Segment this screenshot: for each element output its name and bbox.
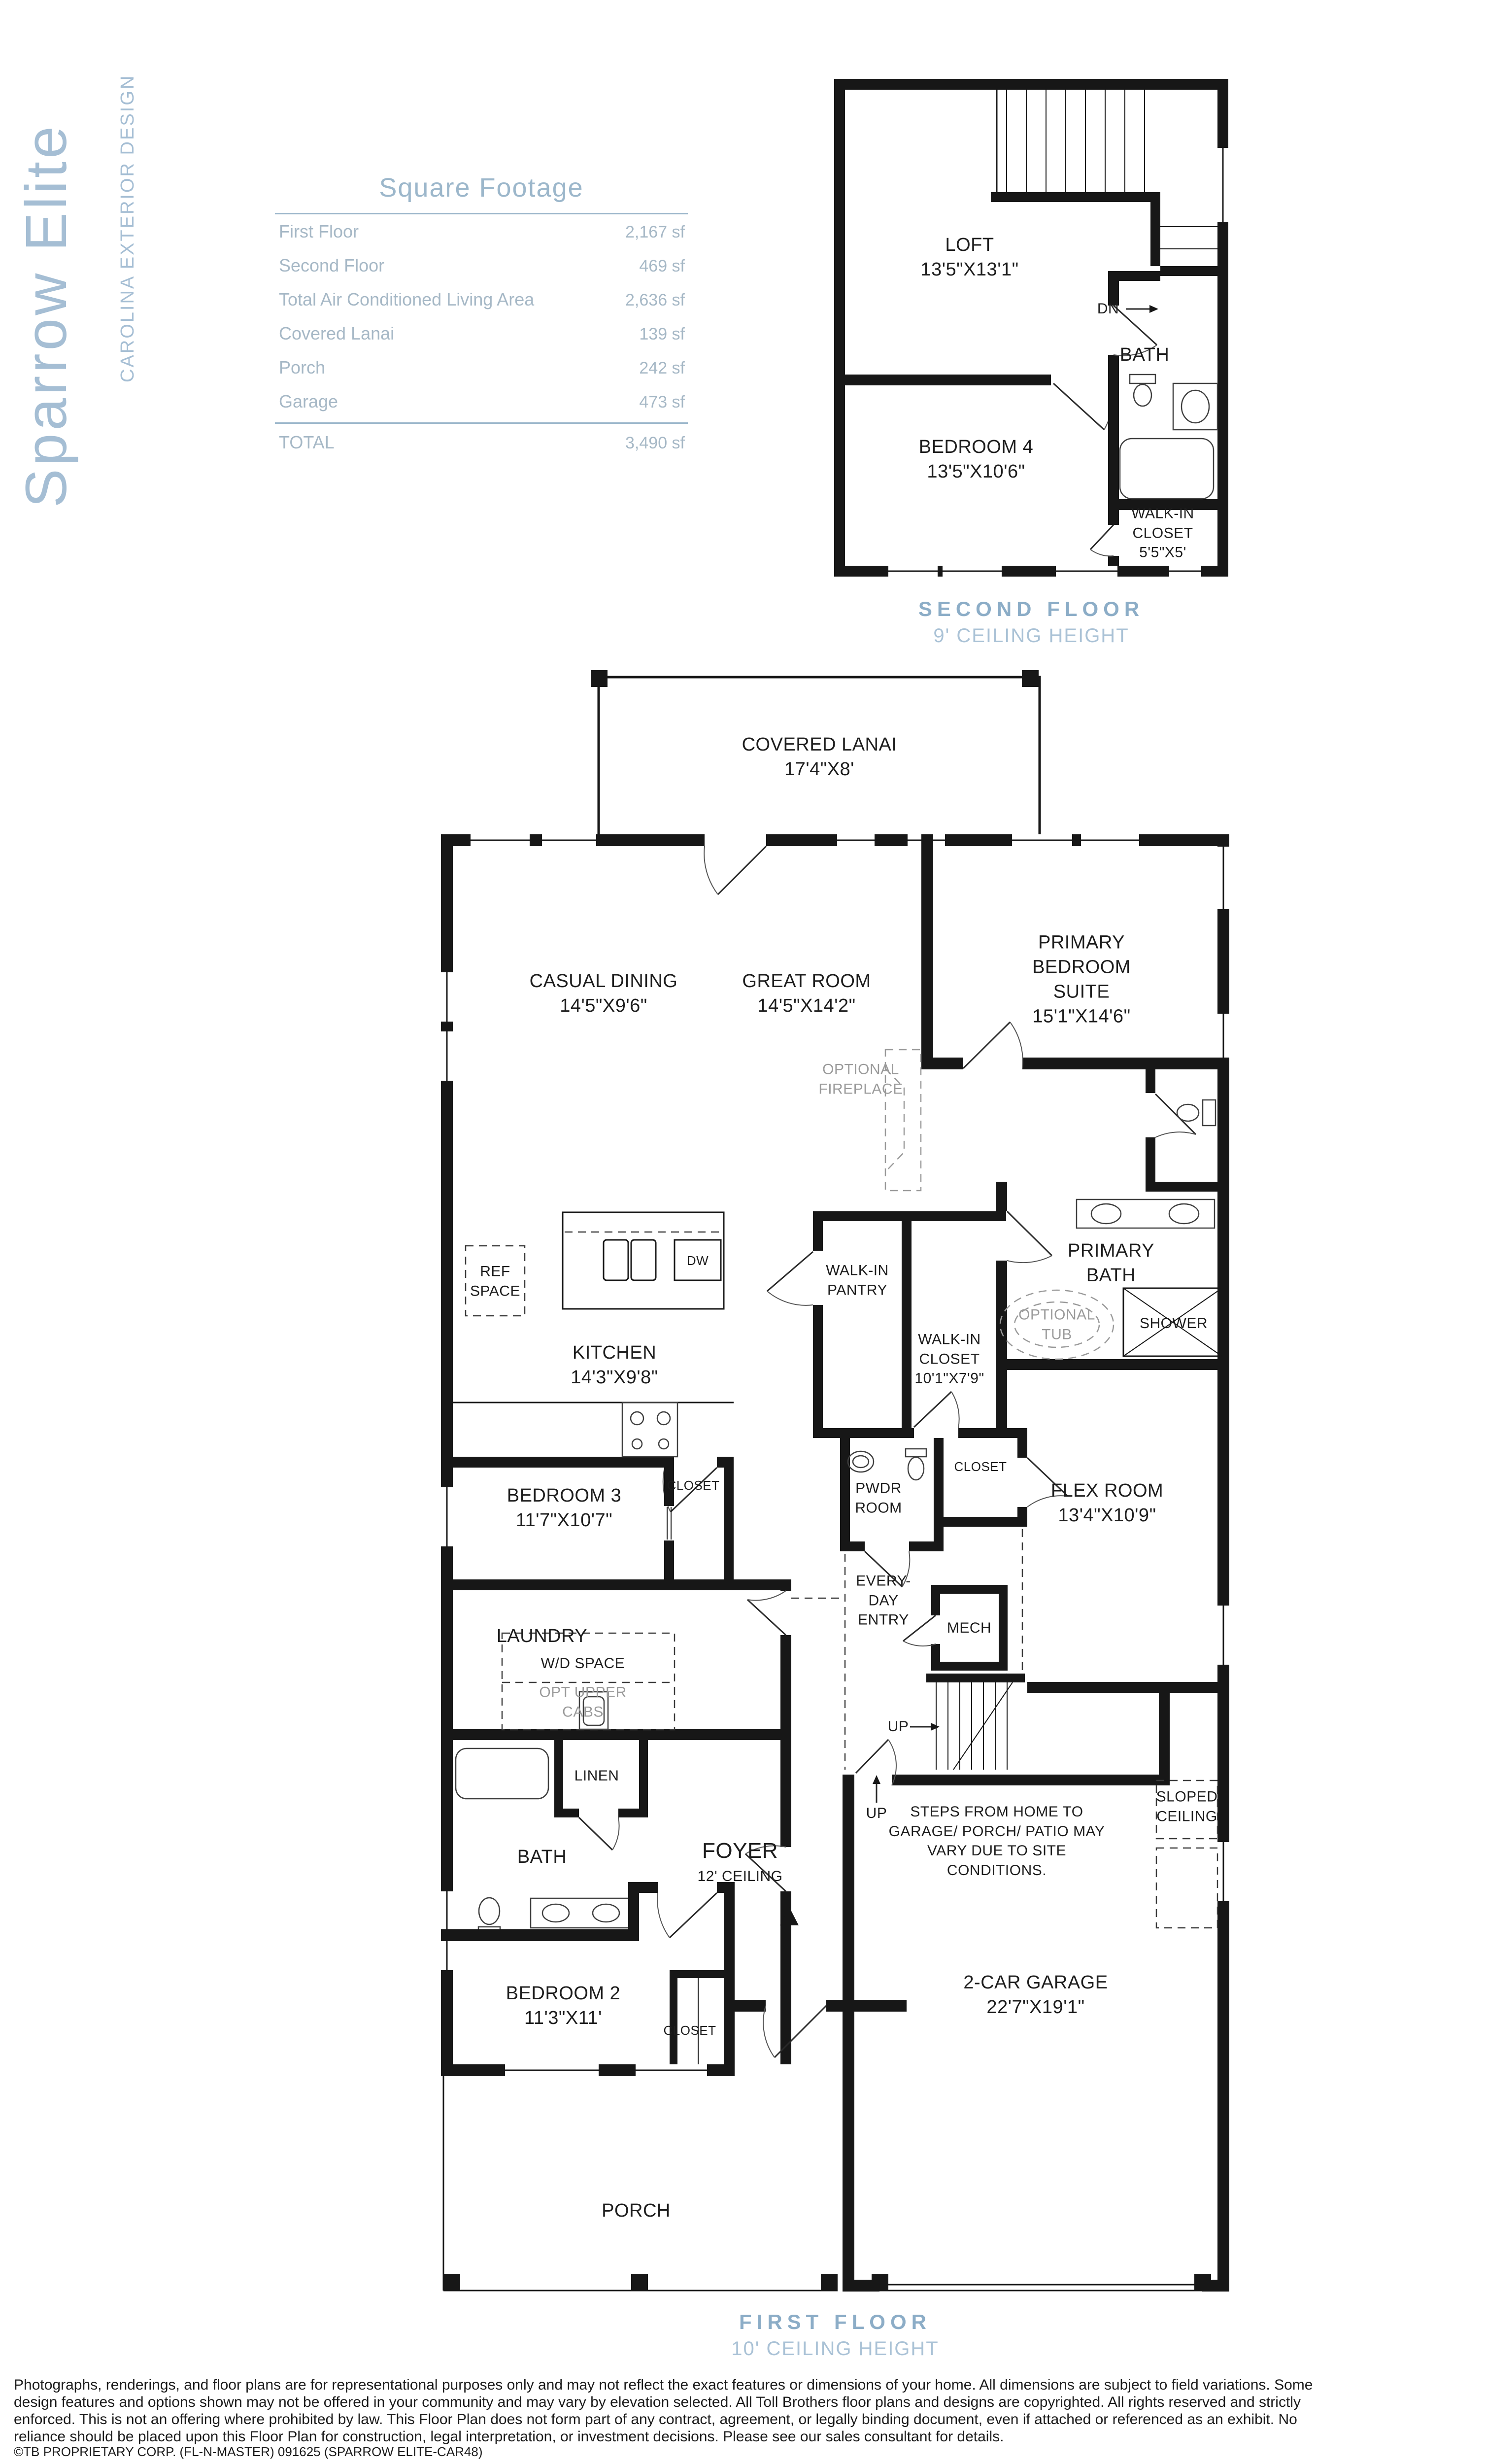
row-label: Second Floor	[279, 255, 384, 276]
door-arc	[1090, 525, 1114, 556]
label-linen: LINEN	[574, 1766, 619, 1786]
table-row: Covered Lanai 139 sf	[275, 316, 688, 350]
label-closet-bedroom3: CLOSET	[667, 1477, 719, 1494]
exterior-design-label: CAROLINA EXTERIOR DESIGN	[117, 62, 138, 382]
disclaimer-line: reliance should be placed upon this Floo…	[14, 2428, 1475, 2445]
table-row: Second Floor 469 sf	[275, 248, 688, 282]
down-arrow-icon	[1126, 305, 1158, 313]
label-opt-upper-cabs: OPT UPPER CABS	[539, 1682, 626, 1721]
door-arc	[1053, 380, 1113, 430]
label-casual-dining: CASUAL DINING 14'5"X9'6"	[530, 969, 678, 1018]
second-floor-subheading: 9' CEILING HEIGHT	[834, 625, 1228, 647]
label-optional-fireplace: OPTIONAL FIREPLACE	[818, 1060, 903, 1098]
row-value: 2,167 sf	[625, 223, 685, 242]
label-closet-bedroom2: CLOSET	[663, 2022, 716, 2039]
label-kitchen: KITCHEN 14'3"X9'8"	[571, 1340, 658, 1390]
first-floor-plan: COVERED LANAI 17'4"X8' CASUAL DINING 14'…	[441, 669, 1229, 2320]
label-optional-tub: OPTIONAL TUB	[1018, 1305, 1095, 1344]
copyright-line: ©TB PROPRIETARY CORP. (FL-N-MASTER) 0916…	[14, 2444, 483, 2460]
label-up-stairs: UP	[888, 1717, 909, 1737]
row-value: 242 sf	[639, 359, 685, 378]
row-value: 2,636 sf	[625, 291, 685, 310]
garage-door	[872, 2274, 1211, 2291]
door-arc	[1155, 1094, 1196, 1137]
label-shower: SHOWER	[1140, 1314, 1208, 1334]
label-garage: 2-CAR GARAGE 22'7"X19'1"	[963, 1970, 1108, 2019]
label-covered-lanai: COVERED LANAI 17'4"X8'	[742, 732, 897, 782]
first-floor-caption: FIRST FLOOR 10' CEILING HEIGHT	[441, 2310, 1229, 2360]
table-row: Garage 473 sf	[275, 384, 688, 418]
toilet-icon	[906, 1449, 926, 1480]
front-door-arc	[763, 2006, 826, 2057]
label-foyer: FOYER	[702, 1837, 778, 1865]
door-arc	[747, 1591, 786, 1635]
label-bath: BATH	[517, 1845, 567, 1869]
label-primary-bath: PRIMARY BATH	[1068, 1238, 1154, 1288]
square-footage-title: Square Footage	[275, 172, 688, 214]
door-arc	[704, 846, 766, 894]
disclaimer-line: design features and options shown may no…	[14, 2394, 1475, 2411]
label-walkin-closet-2f: WALK-IN CLOSET 5'5"X5'	[1131, 504, 1194, 563]
label-pwdr-room: PWDR ROOM	[855, 1478, 902, 1517]
label-dw: DW	[687, 1252, 709, 1269]
label-loft: LOFT 13'5"X13'1"	[920, 233, 1018, 282]
table-total-row: TOTAL 3,490 sf	[275, 422, 688, 459]
label-porch: PORCH	[602, 2198, 671, 2223]
door-arc	[657, 1893, 717, 1938]
square-footage-table: Square Footage First Floor 2,167 sf Seco…	[275, 172, 688, 459]
up-arrow-icon	[910, 1723, 940, 1731]
label-bath-2f: BATH	[1120, 342, 1170, 367]
door-arc	[914, 1392, 959, 1428]
bathtub-icon	[456, 1748, 548, 1799]
label-great-room: GREAT ROOM 14'5"X14'2"	[742, 969, 871, 1018]
double-vanity-icon	[1077, 1199, 1215, 1228]
double-vanity-icon	[531, 1898, 631, 1928]
bathtub-icon	[1120, 439, 1214, 499]
table-row: Total Air Conditioned Living Area 2,636 …	[275, 282, 688, 316]
label-walkin-pantry: WALK-IN PANTRY	[826, 1261, 888, 1300]
sink-icon	[1173, 383, 1217, 430]
label-ref-space: REF SPACE	[470, 1262, 520, 1300]
disclaimer: Photographs, renderings, and floor plans…	[14, 2376, 1475, 2445]
label-bedroom2: BEDROOM 2 11'3"X11'	[506, 1981, 621, 2030]
label-walkin-closet: WALK-IN CLOSET 10'1"X7'9"	[914, 1330, 984, 1389]
label-mech: MECH	[947, 1618, 991, 1638]
second-floor-plan: LOFT 13'5"X13'1" DN BATH BEDROOM 4 13'5"…	[834, 79, 1228, 577]
label-closet-hall: CLOSET	[954, 1458, 1007, 1475]
label-everyday-entry: EVERY- DAY ENTRY	[856, 1572, 911, 1630]
row-label: First Floor	[279, 221, 359, 242]
row-value: 473 sf	[639, 393, 685, 412]
first-floor-subheading: 10' CEILING HEIGHT	[441, 2338, 1229, 2360]
label-foyer-ceiling: 12' CEILING	[698, 1867, 783, 1886]
row-value: 469 sf	[639, 257, 685, 276]
label-primary-suite: PRIMARY BEDROOM SUITE 15'1"X14'6"	[1008, 930, 1155, 1029]
row-label: Covered Lanai	[279, 323, 394, 344]
sink-icon	[848, 1451, 874, 1472]
table-row: Porch 242 sf	[275, 350, 688, 384]
porch-outline	[443, 2076, 838, 2291]
second-floor-walls	[834, 79, 1228, 577]
label-dn: DN	[1097, 299, 1119, 319]
door-arc	[767, 1252, 813, 1305]
label-steps-note: STEPS FROM HOME TO GARAGE/ PORCH/ PATIO …	[880, 1802, 1113, 1880]
row-label: Porch	[279, 357, 325, 378]
label-flex-room: FLEX ROOM 13'4"X10'9"	[1051, 1478, 1163, 1528]
stairs-icon	[926, 1674, 1025, 1770]
second-floor-caption: SECOND FLOOR 9' CEILING HEIGHT	[834, 597, 1228, 647]
row-label: Garage	[279, 391, 338, 412]
label-bedroom4: BEDROOM 4 13'5"X10'6"	[919, 435, 1034, 484]
door-arc	[579, 1817, 619, 1850]
up-arrow-icon	[873, 1775, 880, 1803]
toilet-icon	[1130, 375, 1155, 406]
door-arc	[1007, 1211, 1052, 1263]
row-label: Total Air Conditioned Living Area	[279, 289, 534, 310]
first-floor-heading: FIRST FLOOR	[441, 2310, 1229, 2334]
label-wd-space: W/D SPACE	[541, 1654, 625, 1674]
total-label: TOTAL	[279, 432, 335, 453]
range-icon	[622, 1403, 677, 1457]
stairs-icon	[991, 90, 1217, 276]
plan-title: Sparrow Elite	[13, 47, 80, 508]
disclaimer-line: Photographs, renderings, and floor plans…	[14, 2376, 1475, 2394]
total-value: 3,490 sf	[625, 434, 685, 453]
label-bedroom3: BEDROOM 3 11'7"X10'7"	[507, 1483, 622, 1533]
disclaimer-line: enforced. This is not an offering where …	[14, 2411, 1475, 2428]
second-floor-heading: SECOND FLOOR	[834, 597, 1228, 621]
label-laundry: LAUNDRY	[497, 1624, 587, 1648]
row-value: 139 sf	[639, 325, 685, 344]
table-row: First Floor 2,167 sf	[275, 214, 688, 248]
floor-plan-sheet: Sparrow Elite CAROLINA EXTERIOR DESIGN S…	[0, 0, 1486, 2464]
label-sloped-ceiling: SLOPED CEILING	[1156, 1787, 1218, 1826]
